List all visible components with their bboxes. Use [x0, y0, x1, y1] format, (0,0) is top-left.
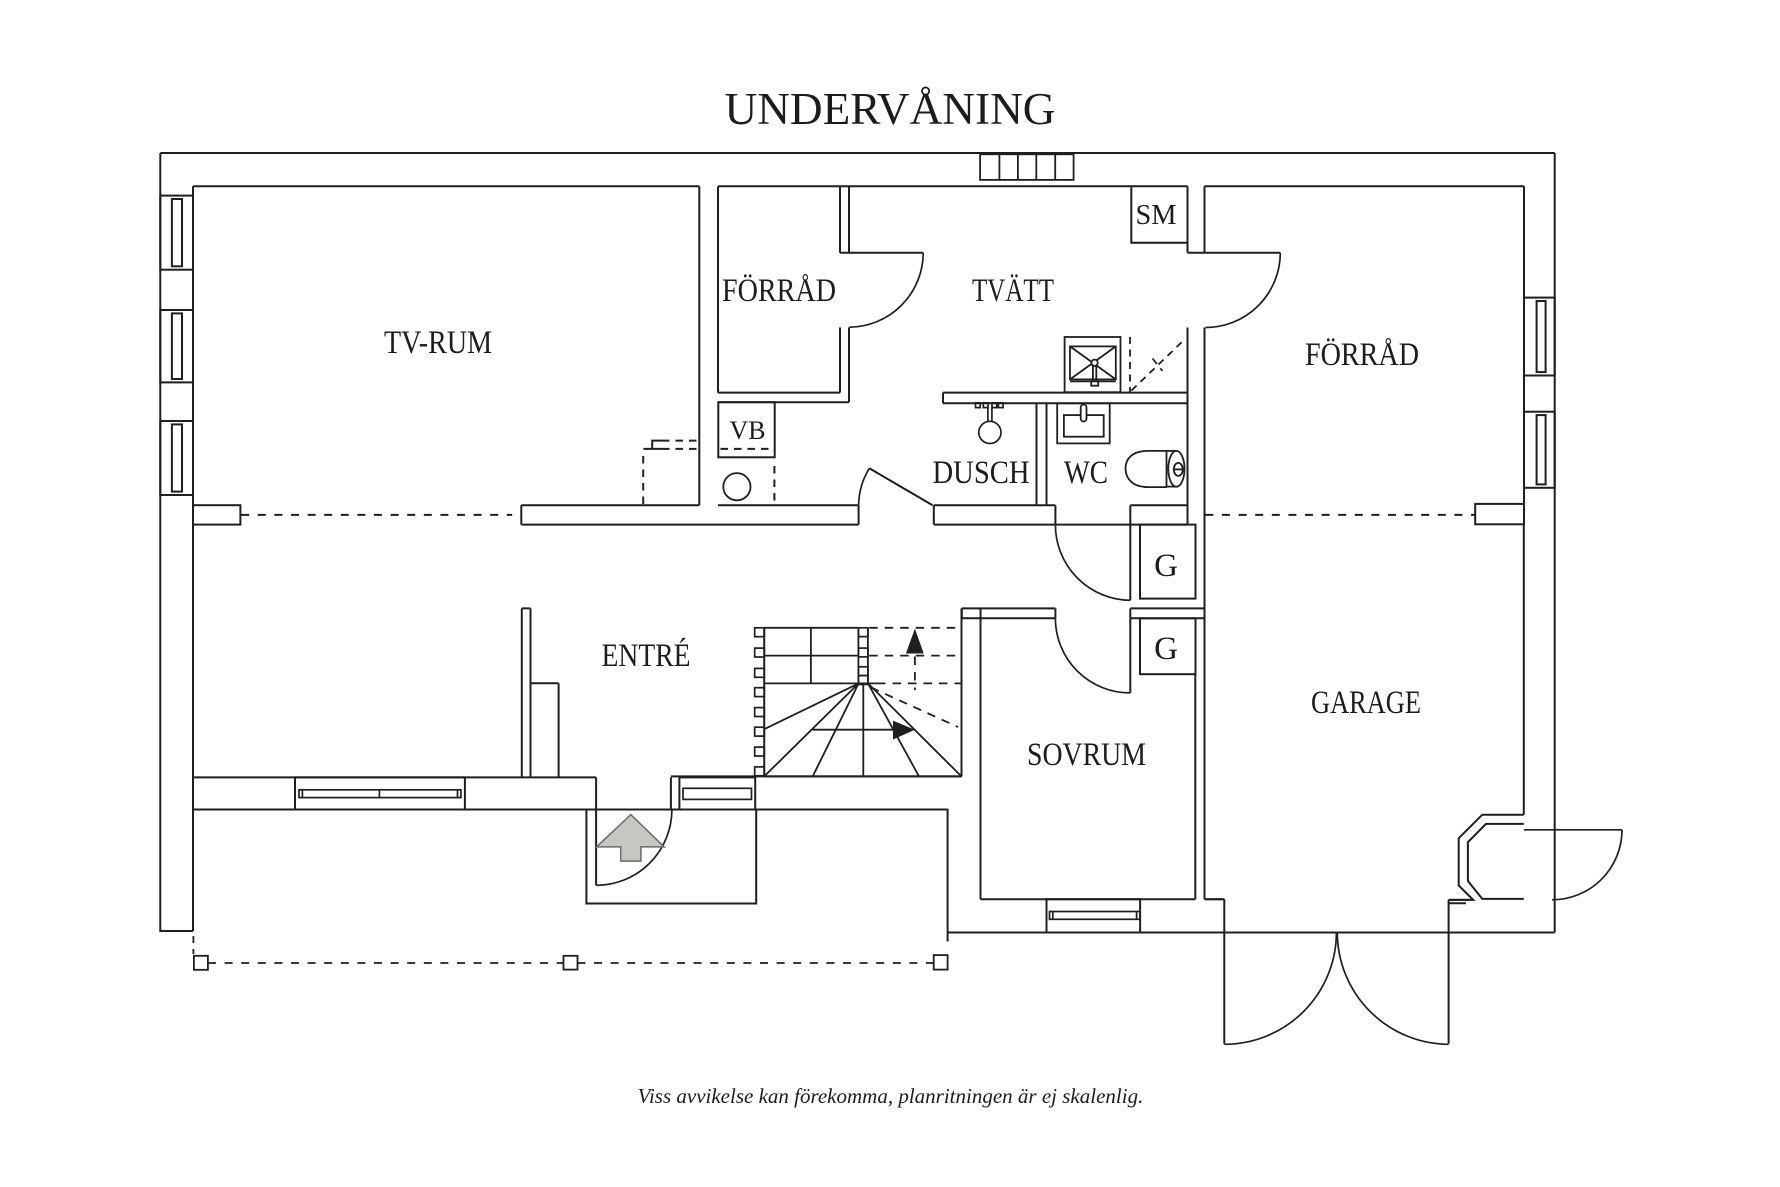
svg-text:VB: VB	[730, 416, 766, 445]
svg-text:TV-RUM: TV-RUM	[384, 325, 492, 361]
svg-text:G: G	[1154, 631, 1178, 667]
svg-text:TVÄTT: TVÄTT	[972, 273, 1054, 309]
svg-text:G: G	[1154, 548, 1178, 584]
svg-text:Viss avvikelse kan förekomma,: Viss avvikelse kan förekomma, planritnin…	[638, 1084, 1144, 1108]
svg-text:SM: SM	[1136, 200, 1177, 231]
svg-text:FÖRRÅD: FÖRRÅD	[1305, 336, 1419, 373]
svg-text:WC: WC	[1064, 455, 1108, 491]
svg-text:DUSCH: DUSCH	[933, 455, 1030, 491]
svg-text:FÖRRÅD: FÖRRÅD	[722, 272, 836, 309]
svg-text:GARAGE: GARAGE	[1311, 685, 1421, 721]
svg-text:SOVRUM: SOVRUM	[1027, 737, 1146, 773]
svg-text:ENTRÉ: ENTRÉ	[602, 637, 691, 674]
svg-text:UNDERVÅNING: UNDERVÅNING	[725, 84, 1056, 134]
